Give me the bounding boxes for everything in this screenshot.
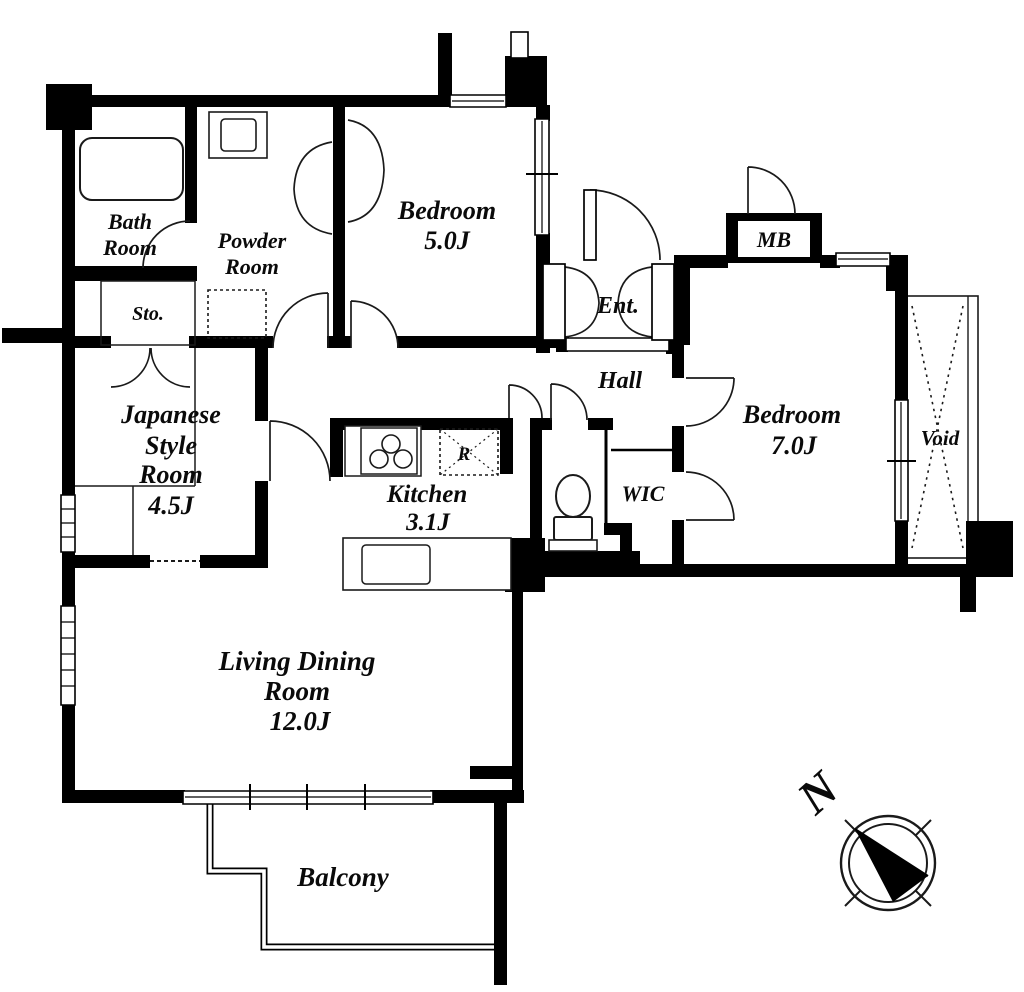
label-bath-1: Bath — [107, 209, 152, 234]
label-kitchen-2: 3.1J — [405, 509, 451, 536]
label-powder-1: Powder — [217, 228, 287, 253]
kitchen-sink-bowl — [362, 545, 430, 584]
label-japanese-3: Room — [138, 460, 203, 489]
label-bedroom7-1: Bedroom — [742, 400, 841, 429]
shoe-cabinet-right — [652, 264, 674, 340]
label-entrance: Ent. — [596, 293, 639, 319]
washbasin-bowl — [221, 119, 256, 151]
label-living-2: Room — [263, 676, 330, 706]
label-bedroom5-2: 5.0J — [424, 226, 471, 255]
washbasin-icon — [209, 112, 267, 158]
label-hall: Hall — [597, 368, 642, 394]
burner-1 — [382, 435, 400, 453]
front-door-leaf — [584, 190, 596, 260]
label-balcony: Balcony — [296, 862, 390, 892]
burner-3 — [394, 450, 412, 468]
label-bath-2: Room — [102, 235, 157, 260]
label-kitchen-1: Kitchen — [386, 481, 468, 508]
label-living-3: 12.0J — [270, 706, 332, 736]
label-wic: WIC — [622, 481, 665, 506]
toilet-base — [549, 540, 597, 551]
shoe-cabinet-left — [543, 264, 565, 340]
burner-2 — [370, 450, 388, 468]
kitchen-sink-icon — [343, 538, 511, 590]
label-storage: Sto. — [132, 303, 164, 325]
label-japanese-1: Japanese — [120, 400, 221, 429]
label-bedroom7-2: 7.0J — [771, 431, 818, 460]
label-refrigerator: R — [457, 444, 471, 465]
label-void: Void — [921, 426, 960, 450]
toilet-tank — [554, 517, 592, 540]
label-powder-2: Room — [224, 254, 279, 279]
label-japanese-2: Style — [145, 431, 197, 460]
stove-icon — [345, 426, 421, 476]
label-japanese-4: 4.5J — [147, 491, 195, 520]
floor-plan: N Bath Room Powder Room Sto. Bedroom 5.0… — [0, 0, 1024, 992]
bathtub-icon — [80, 138, 183, 200]
label-meter-box: MB — [756, 227, 791, 252]
toilet-bowl — [556, 475, 590, 517]
floor-plan-canvas: N Bath Room Powder Room Sto. Bedroom 5.0… — [0, 0, 1024, 992]
pipe-space — [511, 32, 528, 58]
label-living-1: Living Dining — [218, 646, 376, 676]
label-bedroom5-1: Bedroom — [397, 196, 496, 225]
